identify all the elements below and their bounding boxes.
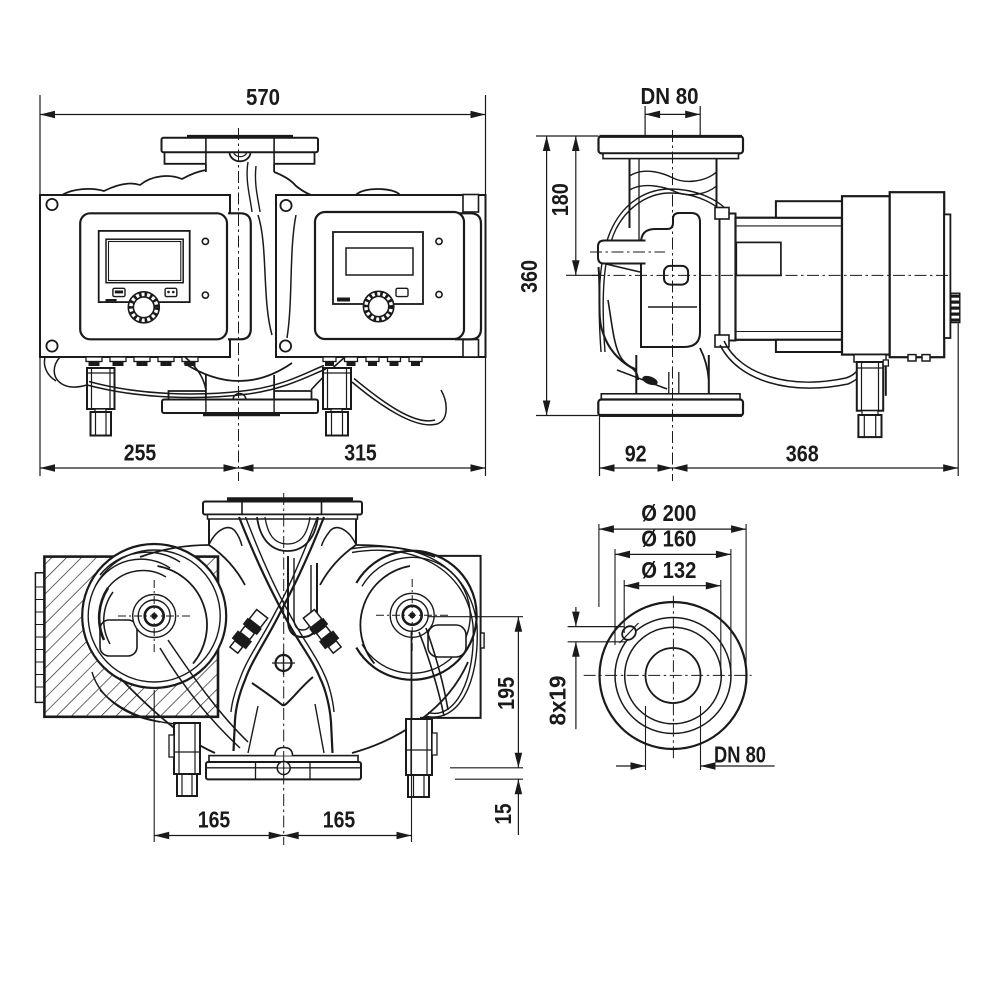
- svg-text:165: 165: [323, 807, 356, 833]
- svg-text:255: 255: [124, 440, 157, 466]
- svg-text:15: 15: [490, 803, 516, 824]
- svg-text:570: 570: [246, 84, 280, 110]
- svg-text:368: 368: [786, 441, 819, 467]
- svg-text:360: 360: [516, 260, 542, 293]
- svg-text:DN 80: DN 80: [714, 742, 766, 768]
- svg-text:92: 92: [625, 441, 647, 467]
- svg-text:165: 165: [198, 807, 231, 833]
- svg-text:315: 315: [344, 440, 377, 466]
- svg-text:Ø 200: Ø 200: [641, 500, 696, 526]
- svg-text:DN 80: DN 80: [641, 83, 699, 109]
- svg-text:195: 195: [493, 677, 519, 710]
- svg-text:8x19: 8x19: [544, 676, 570, 726]
- svg-text:Ø 132: Ø 132: [641, 557, 696, 583]
- svg-text:180: 180: [547, 183, 573, 216]
- svg-text:Ø 160: Ø 160: [641, 526, 696, 552]
